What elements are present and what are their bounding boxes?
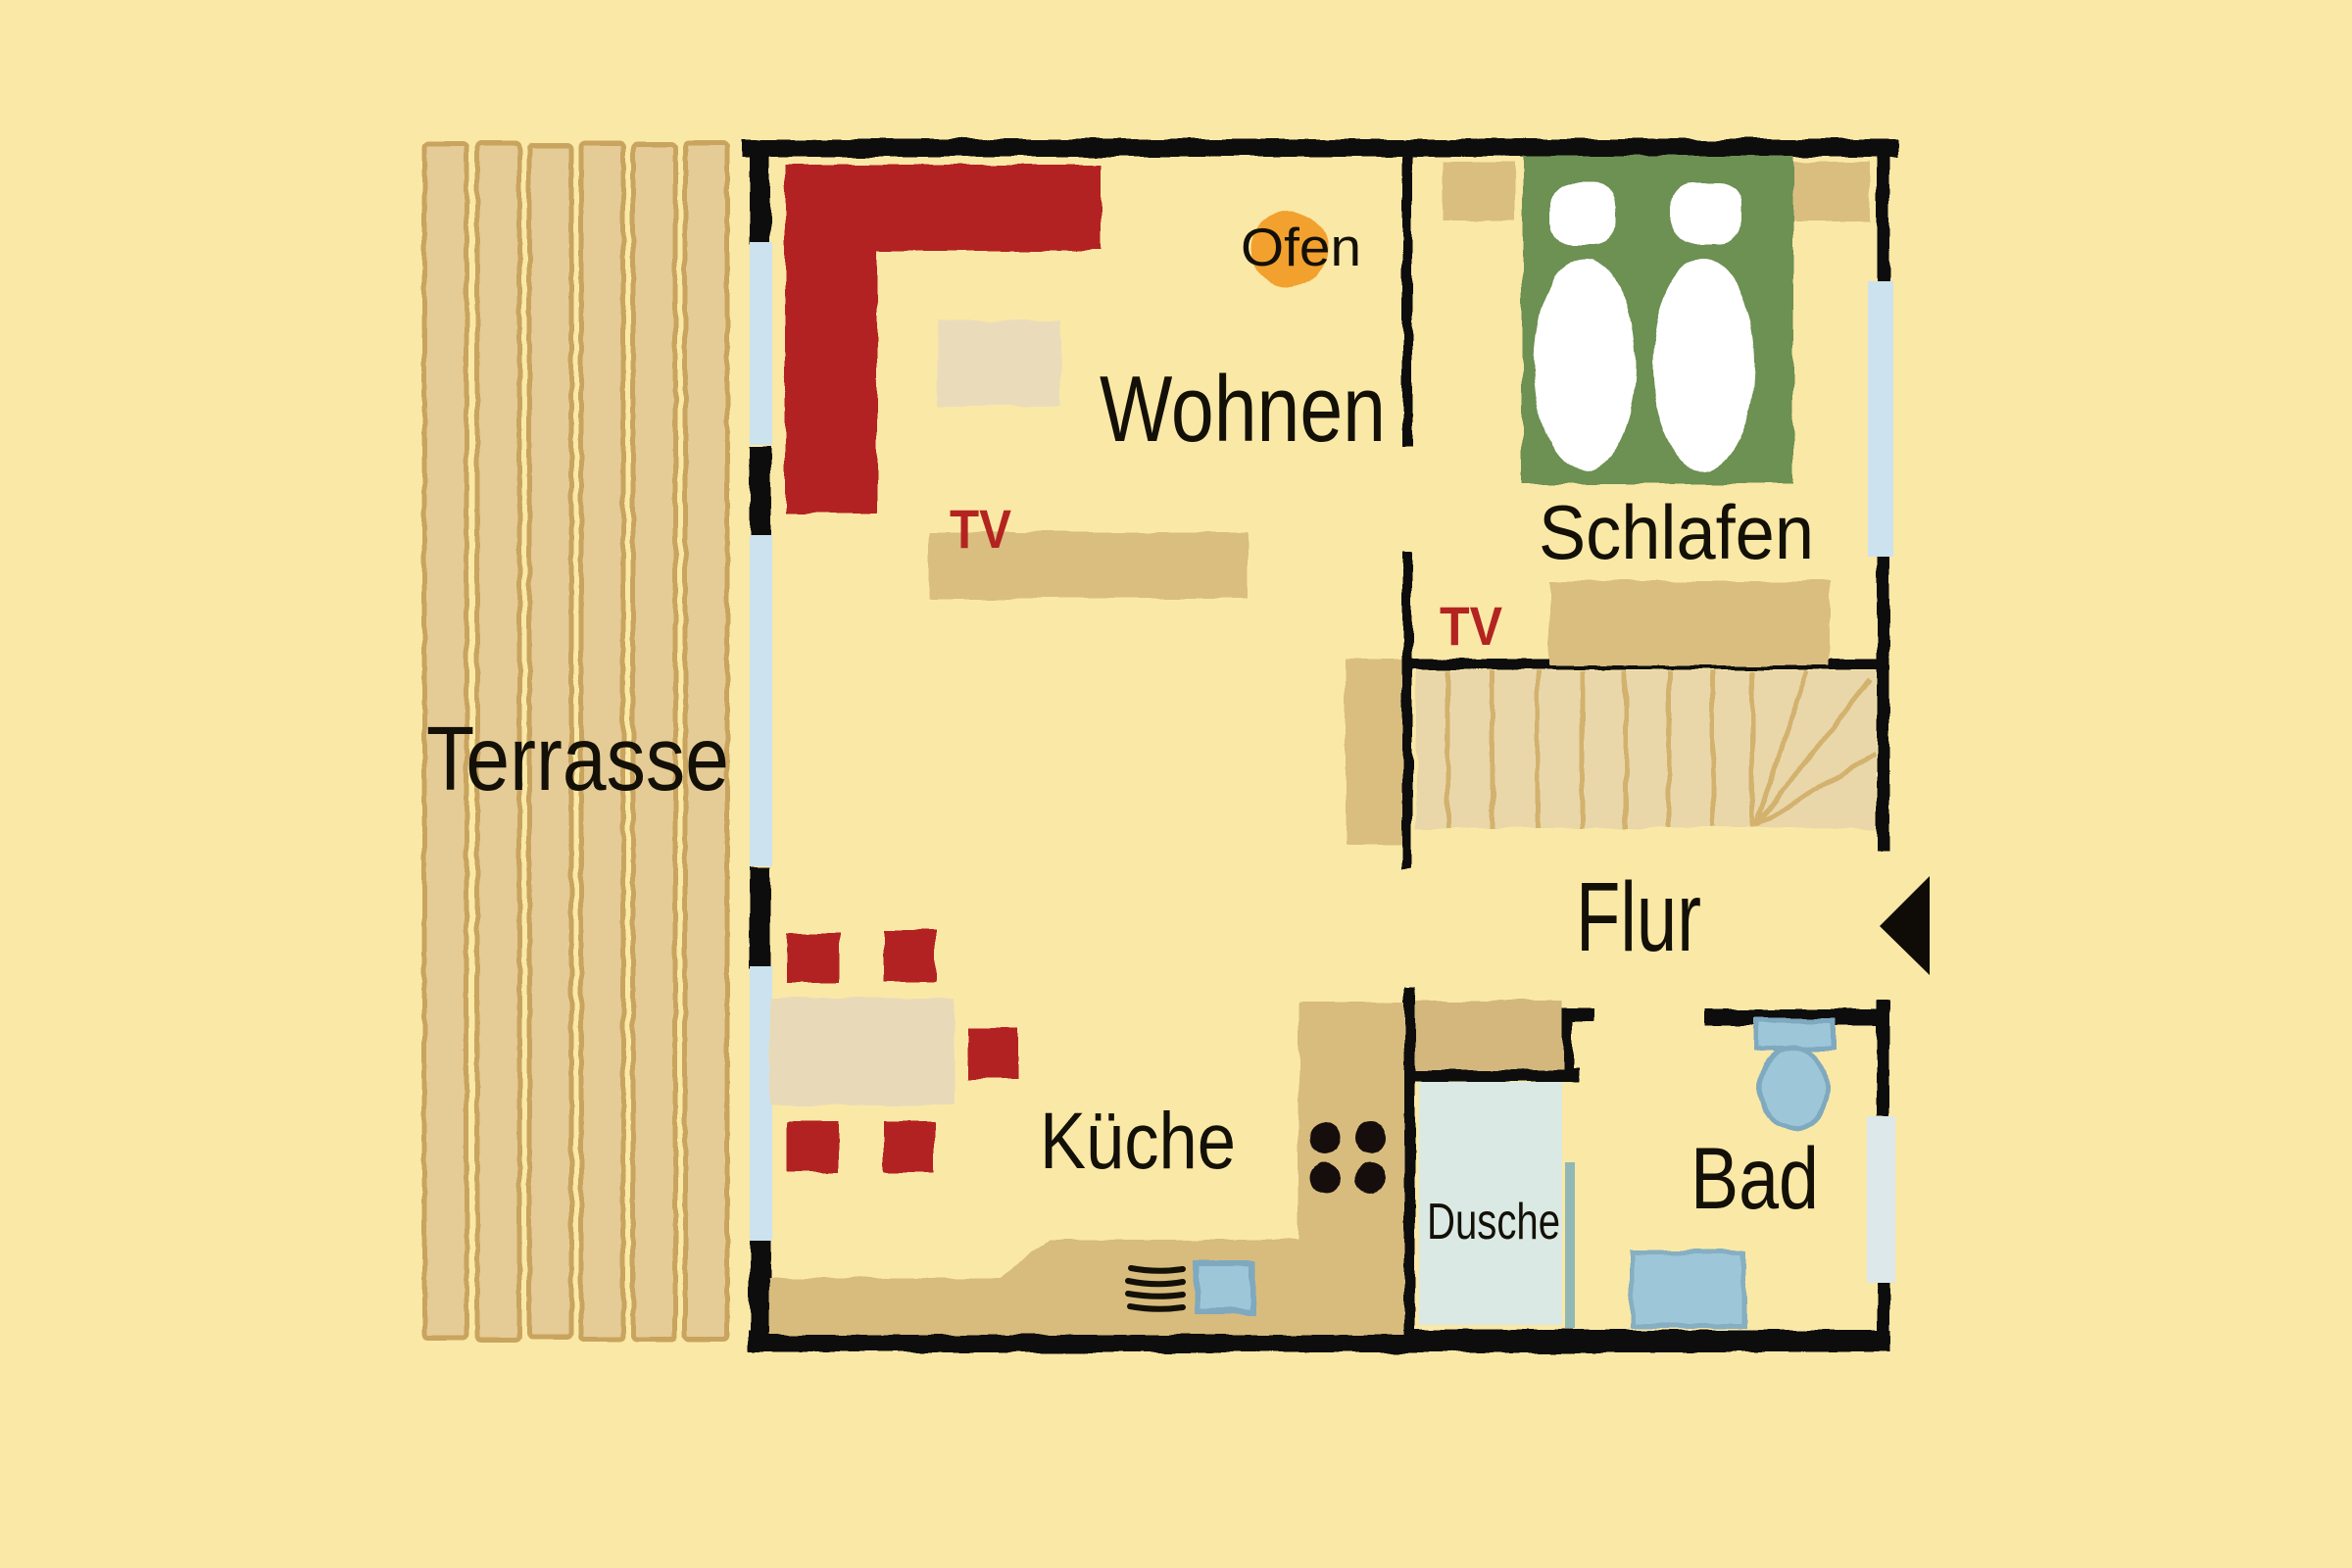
- svg-text:Flur: Flur: [1576, 862, 1701, 972]
- svg-text:Bad: Bad: [1690, 1129, 1819, 1227]
- svg-text:Terrasse: Terrasse: [426, 708, 729, 809]
- svg-text:Schlafen: Schlafen: [1539, 489, 1814, 575]
- svg-text:Wohnen: Wohnen: [1100, 357, 1386, 462]
- svg-text:Dusche: Dusche: [1427, 1194, 1560, 1250]
- svg-text:TV: TV: [1440, 595, 1502, 657]
- svg-text:TV: TV: [950, 498, 1011, 560]
- svg-text:Ofen: Ofen: [1241, 217, 1361, 277]
- svg-text:Küche: Küche: [1040, 1097, 1236, 1186]
